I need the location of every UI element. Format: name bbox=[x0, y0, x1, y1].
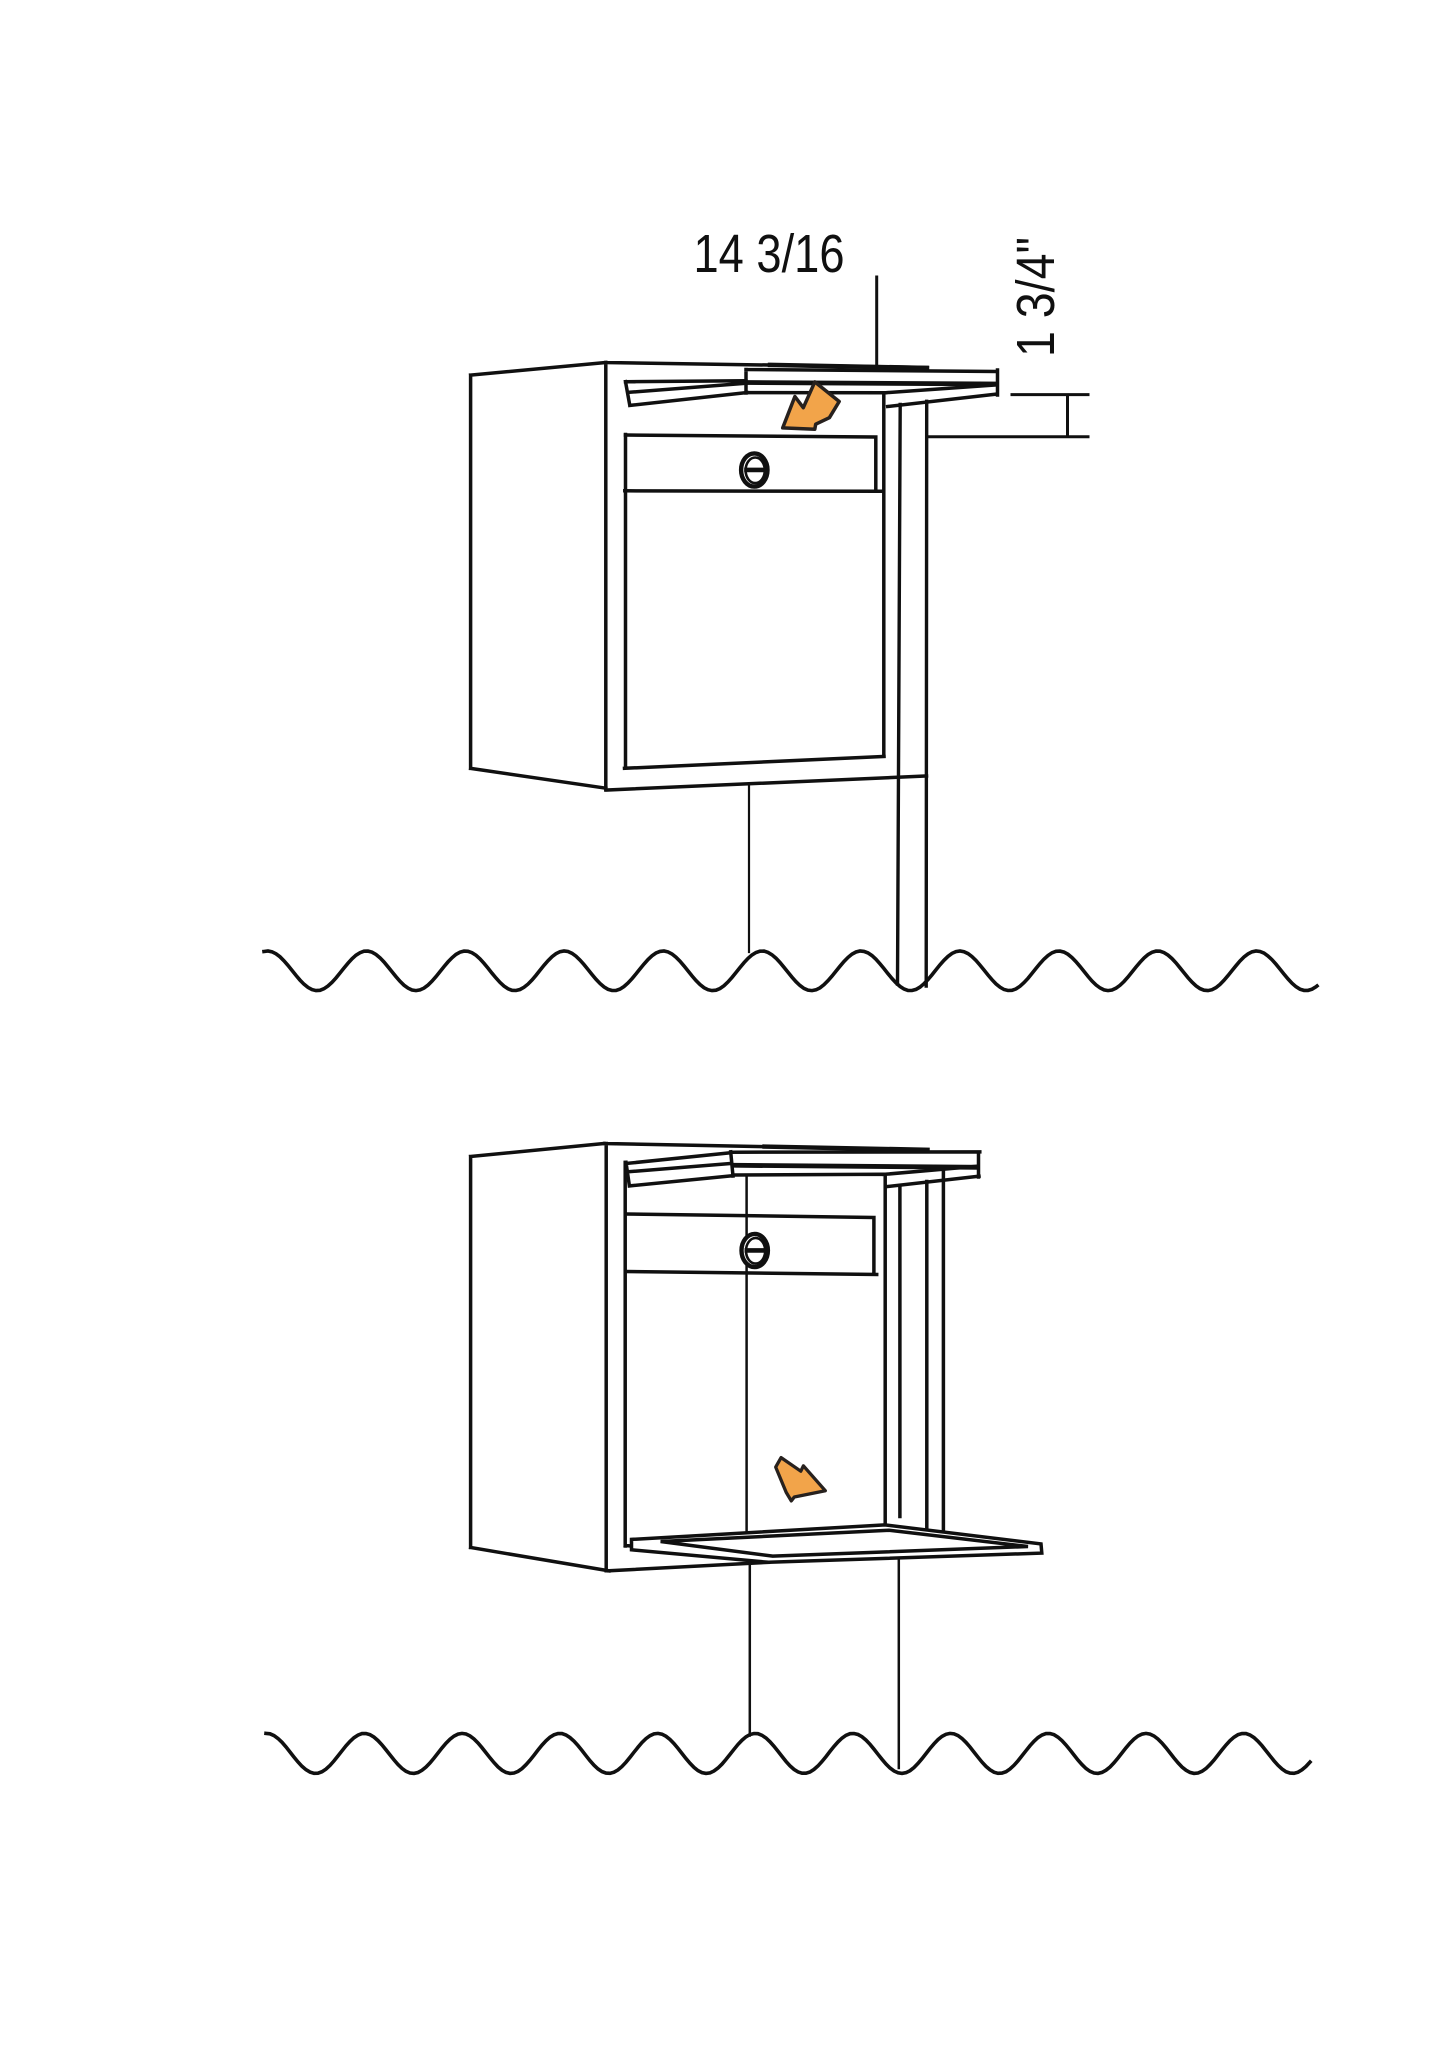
svg-text:14 3/16: 14 3/16 bbox=[694, 224, 845, 284]
svg-text:1 3/4": 1 3/4" bbox=[1006, 237, 1066, 357]
